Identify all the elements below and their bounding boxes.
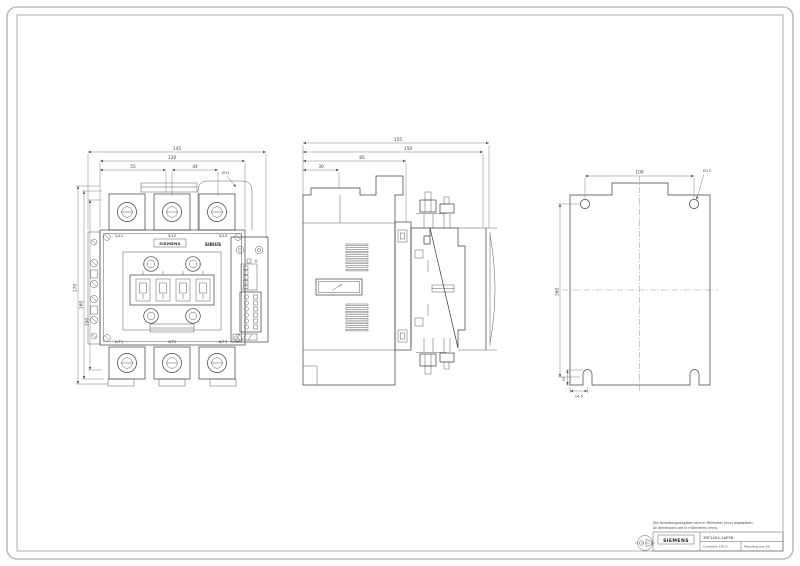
series-label: SIRIUS <box>205 242 221 248</box>
side-bottom-bolts <box>416 338 454 374</box>
back-plate <box>570 183 710 385</box>
dim-hole-dia: Ø13 <box>703 168 711 173</box>
dim-depth-total: 155 <box>394 137 403 143</box>
doc-field-left: Contactor 100 A <box>703 545 728 549</box>
page-frame-inner <box>17 15 783 551</box>
dim-hole-spacing-v: 160 <box>555 288 561 297</box>
doc-field-right: Mounting size S6 <box>744 545 770 549</box>
front-view: 145 120 55 44 Ø11 170 160 150 <box>73 146 269 386</box>
front-terminals-bottom <box>108 347 236 386</box>
drawing-page: 145 120 55 44 Ø11 170 160 150 <box>0 0 800 566</box>
drawing-notes: Die Bemaßungsangaben sind in Millimeter … <box>653 521 754 530</box>
dim-hole-front: Ø11 <box>222 170 230 175</box>
back-hole-right <box>689 199 698 208</box>
front-corner-screws <box>104 234 242 342</box>
front-dimensions-left: 170 160 150 <box>73 186 109 384</box>
brand-label: SIEMENS <box>159 241 181 246</box>
front-terminals-top <box>109 194 235 230</box>
dim-depth-body: 85 <box>359 155 365 161</box>
title-block: SIEMENS 3RT1054-1AP36 Contactor 100 A Mo… <box>635 532 783 551</box>
side-rear-bracket <box>411 228 465 348</box>
terminal-label-1L1: 1/L1 <box>115 233 124 238</box>
side-view: 155 150 85 30 <box>303 137 497 385</box>
note-line-1: Die Bemaßungsangaben sind in Millimeter … <box>653 521 754 525</box>
back-dimensions: 100 Ø13 160 10 14.5 <box>555 168 712 399</box>
front-coil-cover <box>198 181 252 230</box>
dim-width-body: 120 <box>168 155 177 161</box>
dimension-drawing: 145 120 55 44 Ø11 170 160 150 <box>0 0 800 566</box>
dim-slot-offset: 14.5 <box>575 394 584 399</box>
part-number: 3RT1054-1AP36 <box>703 535 734 540</box>
back-view: 100 Ø13 160 10 14.5 <box>555 168 719 399</box>
side-top-bolts <box>416 192 454 228</box>
dim-width-total: 145 <box>173 146 182 152</box>
dim-slot-depth: 10 <box>561 376 566 381</box>
terminal-label-2T1: 2/T1 <box>115 339 124 344</box>
dim-height-total: 170 <box>73 284 79 293</box>
front-right-accessory <box>231 237 268 342</box>
dim-height-mid: 160 <box>79 301 85 310</box>
dim-width-left: 55 <box>130 164 136 170</box>
note-line-2: All dimensions are in millimeters (mm). <box>653 526 718 530</box>
front-body <box>100 230 245 345</box>
side-dimensions-top: 155 150 85 30 <box>303 137 489 228</box>
terminal-label-3L2: 3/L2 <box>168 233 177 238</box>
dim-hole-spacing-h: 100 <box>635 170 644 176</box>
dim-depth-front: 30 <box>318 164 324 170</box>
front-top-tab <box>141 183 197 192</box>
front-coil-area <box>123 252 221 332</box>
side-middle-column <box>395 222 411 350</box>
terminal-label-4T2: 4/T2 <box>168 339 177 344</box>
dim-width-center: 44 <box>192 164 198 170</box>
terminal-label-5L3: 5/L3 <box>219 233 228 238</box>
terminal-label-6T3: 6/T3 <box>219 339 228 344</box>
side-indicator-window <box>316 279 362 295</box>
back-hole-left <box>580 199 589 208</box>
page-frame-outer <box>7 7 793 559</box>
dim-height-face: 150 <box>85 318 91 327</box>
dim-depth-mounting: 150 <box>404 146 413 152</box>
title-brand: SIEMENS <box>663 538 689 544</box>
side-body <box>303 176 403 385</box>
side-vent-slats <box>346 244 368 331</box>
projection-symbol-icon <box>635 536 655 551</box>
